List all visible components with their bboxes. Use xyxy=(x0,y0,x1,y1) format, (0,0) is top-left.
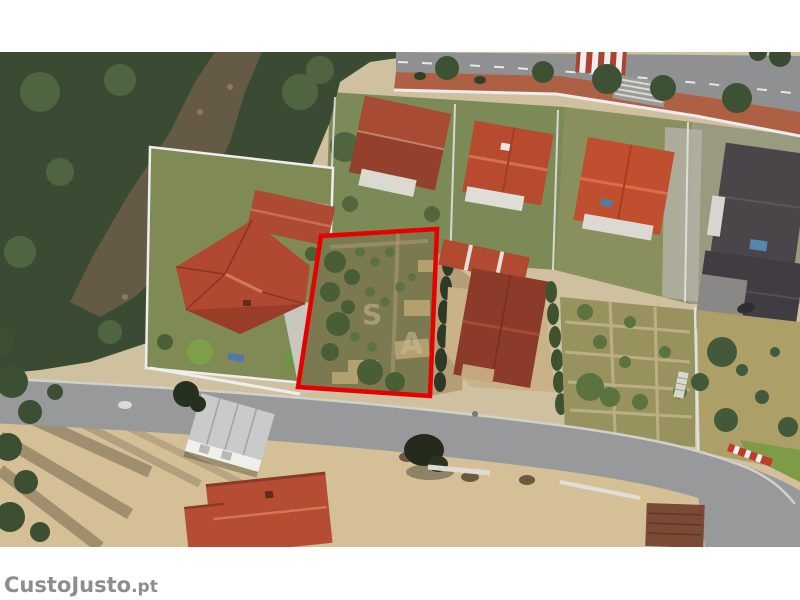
aerial-photo: S A xyxy=(0,52,800,547)
house-dark-red-roof xyxy=(347,96,452,201)
manhole xyxy=(472,411,478,417)
house-orange-roof xyxy=(572,137,674,242)
bush xyxy=(424,206,440,222)
watermark-suffix: .pt xyxy=(131,577,158,597)
watermark-brand: CustoJusto xyxy=(4,573,131,597)
aerial-photo-svg: S A xyxy=(0,52,800,547)
faint-overlay-letter: S xyxy=(362,298,382,331)
bush xyxy=(342,196,358,212)
listing-image-page: { "page": { "description": "Aerial satel… xyxy=(0,0,800,600)
custojusto-watermark: CustoJusto.pt xyxy=(4,574,158,598)
road-mark xyxy=(118,401,132,409)
house-red-roof xyxy=(461,121,554,215)
faint-overlay-letter: A xyxy=(400,327,424,362)
